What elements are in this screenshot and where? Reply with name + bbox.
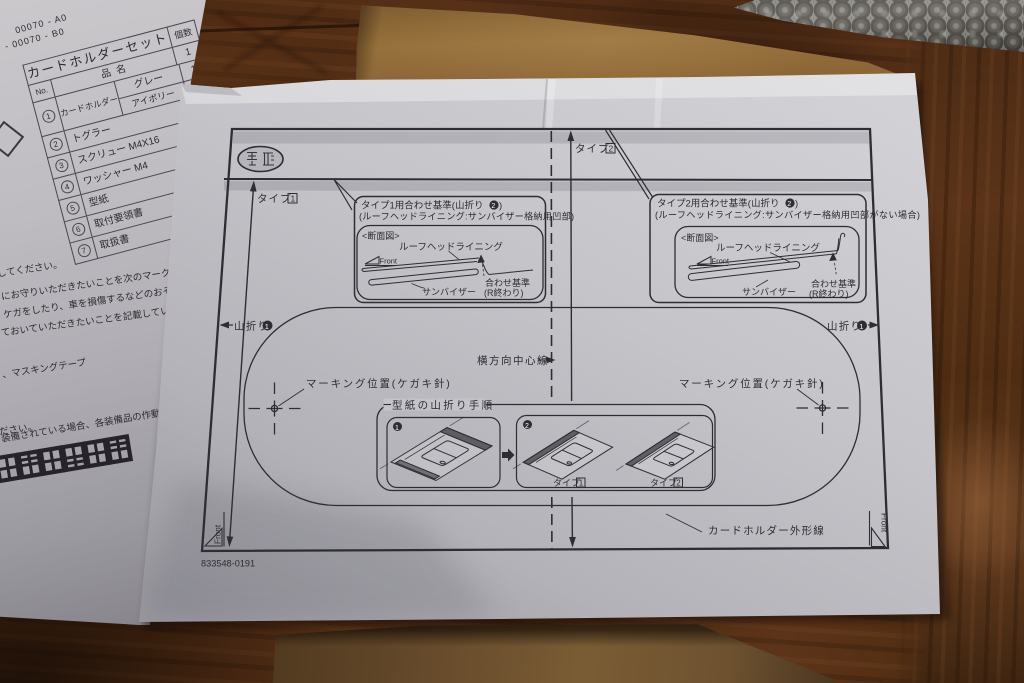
svg-text:1: 1: [859, 322, 863, 331]
svg-text:): ): [795, 199, 798, 210]
svg-text:Front: Front: [380, 257, 398, 266]
svg-text:カードホルダー外形線: カードホルダー外形線: [708, 524, 825, 537]
svg-text:タイプ2用合わせ基準(山折り: タイプ2用合わせ基準(山折り: [657, 198, 779, 210]
svg-text:タイプ: タイプ: [257, 193, 292, 205]
svg-text:1: 1: [265, 322, 269, 331]
svg-text:2: 2: [676, 479, 681, 488]
svg-text:タイプ1用合わせ基準(山折り: タイプ1用合わせ基準(山折り: [361, 200, 483, 212]
svg-text:合わせ基準: 合わせ基準: [485, 277, 530, 288]
svg-text:2: 2: [609, 144, 614, 154]
svg-text:(ルーフヘッドライニング:サンバイザー格納用凹部がない場合): (ルーフヘッドライニング:サンバイザー格納用凹部がない場合): [655, 209, 920, 220]
svg-text:(R終わり): (R終わり): [484, 287, 524, 298]
svg-text:(ルーフヘッドライニング:サンバイザー格納用凹部): (ルーフヘッドライニング:サンバイザー格納用凹部): [359, 211, 574, 222]
svg-text:1: 1: [291, 194, 296, 204]
svg-text:Front: Front: [712, 257, 730, 266]
svg-text:ルーフヘッドライニング: ルーフヘッドライニング: [716, 242, 820, 254]
svg-text:<断面図>: <断面図>: [681, 232, 719, 243]
svg-text:Front: Front: [214, 524, 223, 544]
svg-text:(R終わり): (R終わり): [809, 288, 849, 299]
svg-text:マーキング位置(ケガキ針): マーキング位置(ケガキ針): [679, 377, 825, 390]
svg-text:マーキング位置(ケガキ針): マーキング位置(ケガキ針): [306, 377, 452, 390]
svg-text:タイプ: タイプ: [575, 143, 610, 155]
svg-text:タイプ: タイプ: [553, 478, 580, 488]
svg-text:1: 1: [579, 479, 584, 488]
svg-text:タイプ: タイプ: [650, 478, 677, 488]
svg-text:山折り: 山折り: [827, 320, 862, 333]
svg-text:2: 2: [525, 423, 529, 430]
svg-text:Front: Front: [880, 513, 889, 533]
svg-text:サンバイザー: サンバイザー: [742, 287, 796, 297]
svg-text:833548-0191: 833548-0191: [201, 559, 255, 569]
svg-text:): ): [499, 201, 502, 212]
svg-text:ルーフヘッドライニング: ルーフヘッドライニング: [399, 241, 503, 253]
svg-text:2: 2: [787, 201, 791, 208]
svg-text:2: 2: [491, 203, 495, 210]
svg-text:型紙の山折り手順: 型紙の山折り手順: [392, 399, 494, 412]
svg-text:合わせ基準: 合わせ基準: [811, 278, 856, 289]
svg-text:1: 1: [395, 425, 399, 432]
svg-text:サンバイザー: サンバイザー: [422, 287, 476, 297]
svg-text:<断面図>: <断面図>: [362, 230, 400, 241]
